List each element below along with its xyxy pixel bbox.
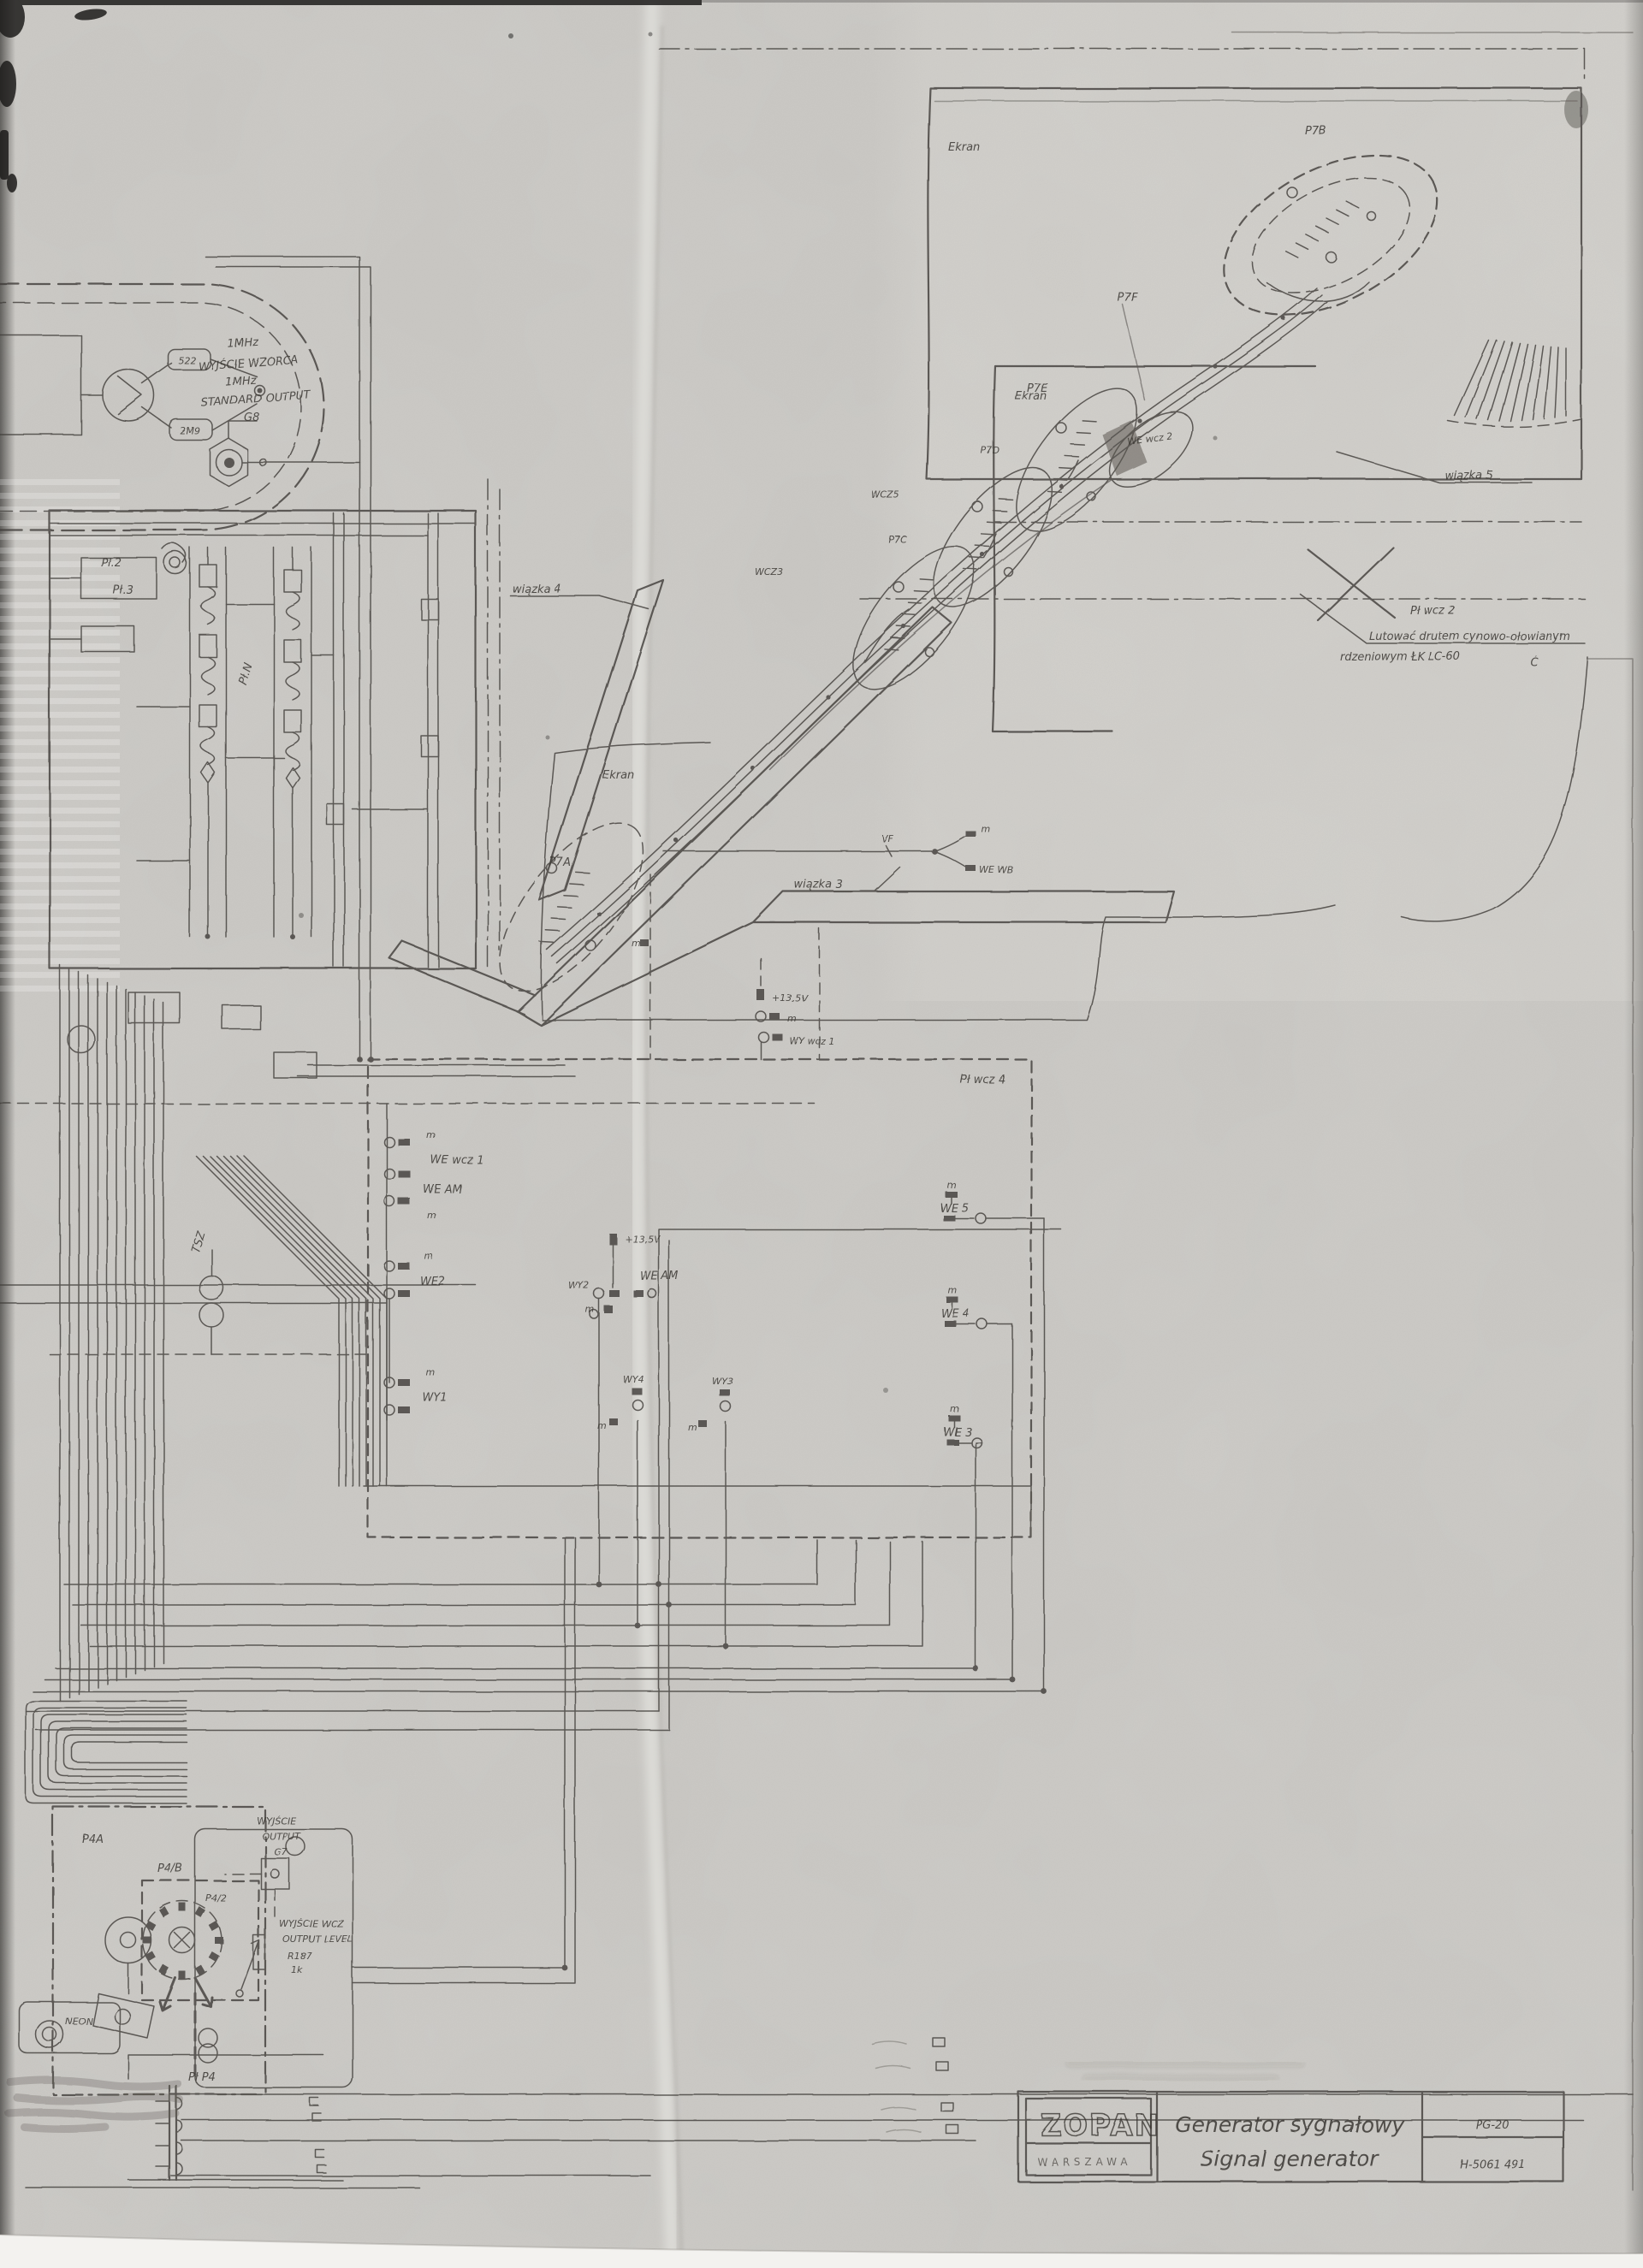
document-number: H-5061 491	[1460, 2158, 1526, 2171]
label-p42: P4/2	[205, 1892, 226, 1904]
drawing-title-en: Signal generator	[1201, 2147, 1380, 2171]
osc-part-b: 2M9	[180, 425, 200, 436]
label-lvl-pl: WYJŚCIE WCZ	[279, 1918, 344, 1929]
label-wcz3: WCZ3	[755, 566, 783, 577]
label-wiazka4: wiązka 4	[512, 583, 561, 595]
scanned-schematic-sheet: 1MHz WYJŚCIE WZORCA 1MHz STANDARD OUTPUT…	[0, 0, 1643, 2268]
label-out-en: OUTPUT	[262, 1831, 301, 1842]
label-wcz5: WCZ5	[871, 489, 899, 500]
label-pl2: Pł.2	[101, 557, 122, 570]
label-m-4: m	[426, 1367, 436, 1378]
label-wiazka5: wiązka 5	[1444, 470, 1493, 483]
label-m-5: m	[585, 1304, 595, 1315]
osc-part-a: 522	[178, 355, 196, 366]
label-we-wcz1: WE wcz 1	[430, 1154, 483, 1167]
label-m-we3: m	[950, 1403, 959, 1414]
label-p4a: P4A	[82, 1833, 104, 1846]
osc-freq-top: 1MHz	[227, 336, 259, 352]
label-pl-wcz4: Pł wcz 4	[960, 1074, 1005, 1087]
label-we2: WE2	[420, 1276, 445, 1288]
osc-freq-mid: 1MHz	[225, 374, 258, 389]
label-m-2: m	[427, 1210, 436, 1221]
label-pl-p4: Pł P4	[188, 2071, 216, 2084]
label-p7e: P7E	[1027, 382, 1048, 395]
drawing-title-pl: Generator sygnałowy	[1175, 2112, 1405, 2137]
model-number: PG-20	[1475, 2119, 1509, 2132]
label-m-7: m	[688, 1422, 697, 1433]
label-wiazka3: wiązka 3	[794, 879, 843, 891]
label-v135-centre: +13,5V	[625, 1234, 661, 1245]
label-p7a: P7A	[549, 856, 571, 869]
label-v135-top: +13,5V	[772, 992, 809, 1004]
label-m-8: m	[787, 1013, 797, 1024]
label-m-we4: m	[948, 1285, 958, 1296]
label-pl-wcz2: Pł wcz 2	[1410, 605, 1456, 618]
label-m-3: m	[424, 1251, 434, 1262]
solder-note-line1: Lutować drutem cynowo-ołowianym	[1369, 631, 1570, 643]
label-r187: R187	[288, 1951, 312, 1962]
label-ekran-3: Ekran	[602, 769, 634, 782]
label-check-mark: Ć	[1530, 655, 1539, 669]
label-m-plate: m	[632, 938, 641, 949]
label-lvl-en: OUTPUT LEVEL	[282, 1933, 353, 1945]
label-we3: WE 3	[943, 1426, 971, 1439]
label-wy2: WY2	[568, 1280, 590, 1291]
label-we4: WE 4	[941, 1308, 970, 1321]
solder-note-line2: rdzeniowym ŁK LC-60	[1340, 651, 1461, 664]
label-m-1: m	[426, 1129, 436, 1140]
label-p7d: P7D	[981, 445, 999, 456]
label-vf: VF	[881, 833, 894, 844]
label-p4b: P4/B	[157, 1862, 182, 1875]
label-wy1: WY1	[423, 1392, 448, 1405]
label-wy-wcz1: WY wcz 1	[789, 1035, 833, 1046]
company-city: WARSZAWA	[1037, 2156, 1132, 2168]
label-neon: NEON	[65, 2016, 92, 2027]
company-name: ZOPAN	[1041, 2109, 1160, 2143]
label-p7f: P7F	[1118, 292, 1138, 305]
scan-streaks	[0, 479, 120, 992]
label-we-am-1: WE AM	[423, 1183, 461, 1196]
label-wy4: WY4	[623, 1374, 644, 1385]
label-m-wewb: m	[981, 823, 990, 834]
label-g7: G7	[274, 1846, 288, 1857]
label-pl3: Pł.3	[113, 584, 133, 597]
label-we-wb: WE WB	[979, 864, 1013, 875]
label-we5: WE 5	[940, 1202, 968, 1215]
label-wy3: WY3	[712, 1376, 733, 1387]
label-p7b: P7B	[1305, 125, 1326, 138]
label-m-6: m	[597, 1420, 607, 1431]
label-we-am-2: WE AM	[640, 1270, 679, 1283]
label-r187-val: 1k	[291, 1964, 303, 1975]
label-p7c: P7C	[888, 534, 907, 545]
label-out-pl: WYJŚCIE	[257, 1815, 296, 1827]
label-m-we5: m	[946, 1179, 956, 1190]
osc-connector-g8: G8	[244, 412, 259, 424]
label-ekran-1: Ekran	[948, 141, 980, 154]
